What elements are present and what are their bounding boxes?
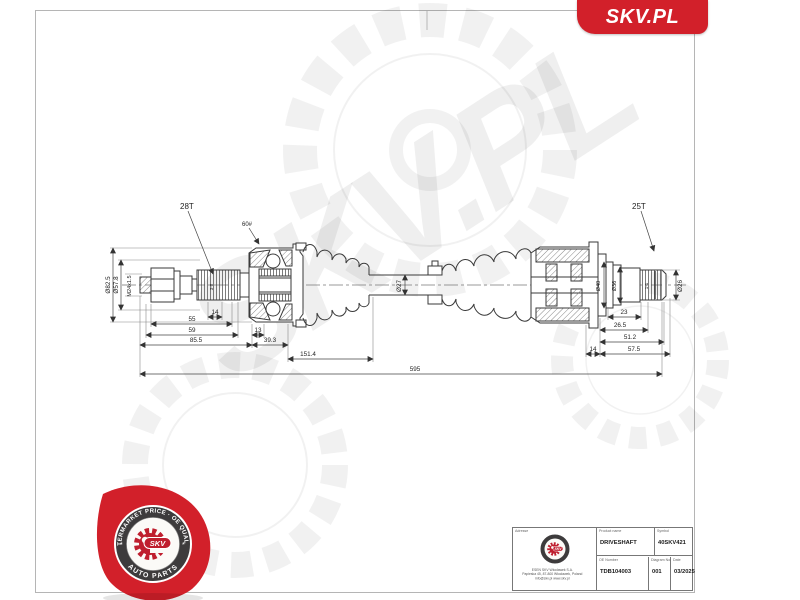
dim-boot-od: Ø57.8: [113, 276, 120, 294]
dim-shaft-dia: Ø27: [396, 280, 403, 292]
dim-57-5: 57.5: [628, 346, 641, 353]
dim-26-5: 26.5: [614, 322, 627, 329]
dim-85-5: 85.5: [190, 337, 203, 344]
product-name-label: Product name: [599, 529, 621, 533]
diagram-no-label: Diagram No.: [651, 558, 671, 562]
label-left-spline-teeth: 28T: [180, 202, 194, 211]
diagram-no-cell: Diagram No. 001: [649, 557, 671, 590]
note-left-spline: 3-8: [209, 283, 214, 290]
date-value: 03/2025: [674, 568, 695, 574]
date-cell: Date 03/2025: [671, 557, 692, 590]
dim-55: 55: [188, 316, 196, 323]
badge-skv-text: SKV: [150, 539, 166, 548]
badge-star-left-icon: *: [120, 542, 123, 549]
oe-number-value: TDB104003: [600, 568, 631, 574]
label-hardness: 60#: [242, 222, 253, 228]
dim-stub-dia: Ø26: [677, 280, 684, 292]
dim-151-4: 151.4: [300, 351, 316, 358]
badge-star-right-icon: *: [182, 542, 185, 549]
catalog-sheet: SKV.PL SKV.PL: [0, 0, 800, 600]
dim-step-dia: Ø36: [612, 281, 618, 291]
brand-banner: SKV.PL: [577, 0, 708, 34]
dim-59: 59: [188, 327, 196, 334]
dim-39-3: 39.3: [264, 337, 277, 344]
dim-14-right: 14: [589, 346, 597, 353]
product-name-value: DRIVESHAFT: [600, 539, 637, 545]
oe-number-cell: OE Number TDB104003: [597, 557, 649, 590]
dim-13: 13: [254, 327, 262, 334]
oe-number-label: OE Number: [599, 558, 618, 562]
dim-housing-od: Ø82.5: [105, 276, 112, 294]
title-block-address-cell: Adresse SKV ESEN SKV Włocławek S.A. Papi…: [513, 528, 597, 590]
skv-logo-badge: AFTERMARKET PRICE · OE QUALITY AUTO PART…: [86, 474, 226, 600]
brand-text: SKV.PL: [606, 6, 679, 29]
date-label: Date: [673, 558, 681, 562]
dim-cap-dia: Ø40: [596, 281, 602, 291]
label-right-spline-teeth: 25T: [632, 202, 646, 211]
product-name-cell: Product name DRIVESHAFT: [597, 528, 655, 556]
dim-thread: M24x1.5: [127, 275, 133, 296]
symbol-cell: Symbol 40SKV421: [655, 528, 692, 556]
symbol-label: Symbol: [657, 529, 669, 533]
dim-23: 23: [620, 309, 628, 316]
diagram-no-value: 001: [652, 568, 662, 574]
company-address: ESEN SKV Włocławek S.A. Papieska 45, 87-…: [514, 568, 591, 581]
dim-14-left: 14: [211, 309, 219, 316]
title-block-stamp-icon: SKV: [513, 530, 597, 568]
dim-overall-length: 595: [410, 366, 421, 373]
dim-51-2: 51.2: [624, 334, 637, 341]
symbol-value: 40SKV421: [658, 539, 686, 545]
note-right-spline: 1-1: [644, 282, 649, 289]
svg-text:SKV: SKV: [555, 547, 563, 551]
title-block: Adresse SKV ESEN SKV Włocławek S.A. Papi…: [512, 527, 693, 591]
